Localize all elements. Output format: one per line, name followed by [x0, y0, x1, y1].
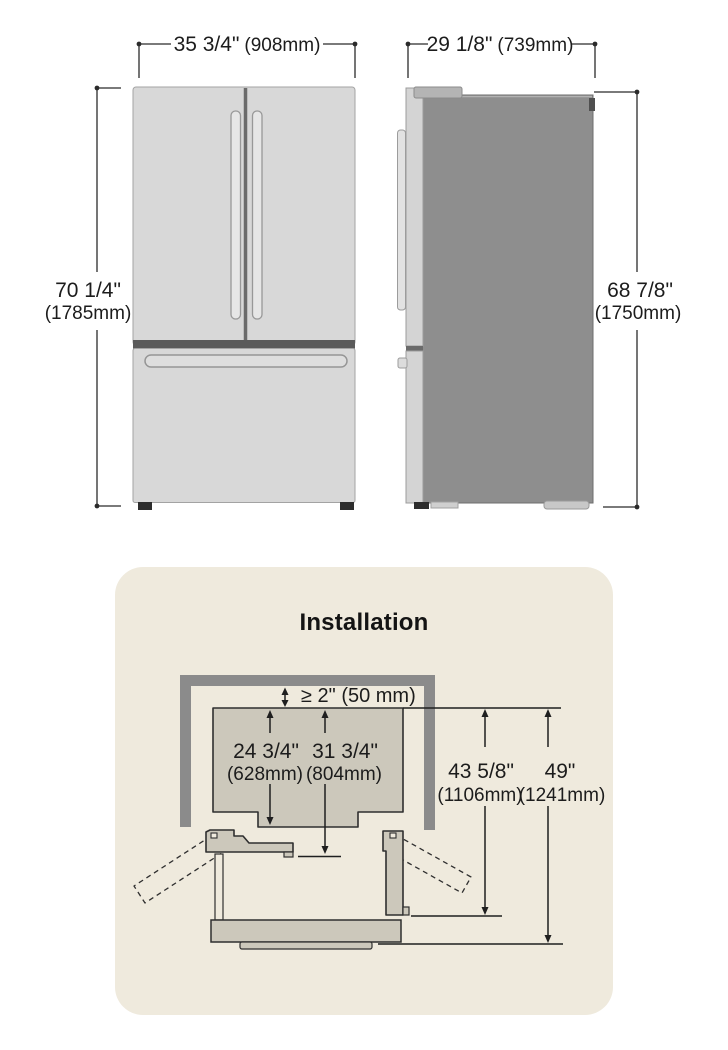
total-depth-label-in: 49"	[545, 760, 576, 783]
side-height-label-mm: (1750mm)	[595, 303, 682, 324]
side-handle	[398, 130, 406, 310]
right-door-handle-tab	[403, 907, 409, 915]
side-rear-roller	[544, 501, 589, 509]
drawer-handle	[145, 355, 347, 367]
front-height-label-in: 70 1/4"	[55, 279, 121, 302]
front-width-dimension: 35 3/4"(908mm)	[137, 33, 358, 78]
dimension-diagram: 35 3/4"(908mm) 29 1/8"(739mm) 70 1/4" (1…	[0, 0, 728, 1050]
side-divider	[406, 346, 423, 351]
side-depth-label: 29 1/8"(739mm)	[427, 33, 574, 56]
open-door-depth-label-in: 43 5/8"	[448, 760, 514, 783]
right-door-handle	[253, 111, 263, 319]
front-view	[133, 87, 355, 510]
door-depth-label-mm: (804mm)	[306, 764, 382, 785]
clearance-label: ≥ 2" (50 mm)	[301, 685, 416, 707]
door-drawer-divider	[133, 340, 355, 349]
open-door-depth-label-mm: (1106mm)	[437, 785, 522, 806]
total-depth-label-mm: (1241mm)	[519, 785, 606, 806]
clearance-dimension: ≥ 2" (50 mm)	[282, 685, 416, 707]
cabinet-depth-label-in: 24 3/4"	[233, 740, 299, 763]
side-door-edge	[406, 88, 423, 346]
installation-title: Installation	[299, 609, 428, 636]
right-door-open	[383, 831, 403, 915]
left-door-handle-tab	[284, 852, 293, 857]
front-height-label-mm: (1785mm)	[45, 303, 132, 324]
side-view	[398, 87, 596, 509]
freezer-drawer	[133, 349, 355, 503]
right-hinge-notch	[390, 833, 396, 838]
front-left-foot	[138, 502, 152, 510]
front-right-foot	[340, 502, 354, 510]
left-hinge-notch	[211, 833, 217, 838]
side-height-dimension: 68 7/8" (1750mm)	[594, 90, 681, 510]
cabinet-depth-label-mm: (628mm)	[227, 764, 303, 785]
front-height-dimension: 70 1/4" (1785mm)	[45, 86, 132, 509]
drawer-pulled-out	[211, 920, 401, 942]
top-hinge-pin	[589, 98, 595, 111]
side-height-label-in: 68 7/8"	[607, 279, 673, 302]
drawer-basket-edge	[240, 942, 372, 949]
left-door-handle	[231, 111, 241, 319]
side-cabinet	[422, 95, 593, 503]
side-front-foot	[414, 502, 429, 509]
side-drawer-handle	[398, 358, 407, 368]
front-width-label: 35 3/4"(908mm)	[174, 33, 321, 56]
hinge-cover	[414, 87, 462, 98]
spec-sheet: 35 3/4"(908mm) 29 1/8"(739mm) 70 1/4" (1…	[0, 0, 728, 1050]
side-mid-foot	[431, 502, 458, 508]
side-depth-dimension: 29 1/8"(739mm)	[406, 33, 598, 78]
side-drawer-edge	[406, 351, 423, 503]
door-depth-label-in: 31 3/4"	[312, 740, 378, 763]
installation-panel: Installation ≥ 2" (50 mm)	[115, 567, 613, 1015]
left-door-open-outline	[215, 854, 223, 920]
